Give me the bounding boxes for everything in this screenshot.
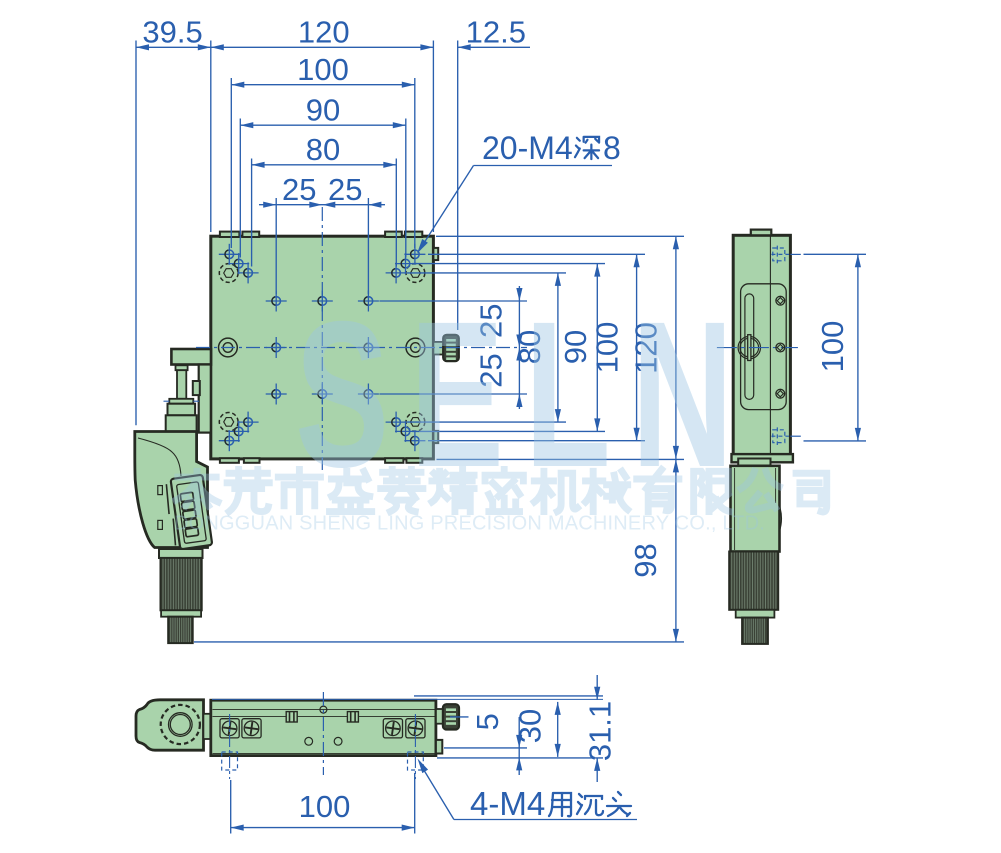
svg-text:31.1: 31.1 [583, 701, 618, 761]
svg-text:100: 100 [297, 52, 349, 87]
svg-text:25: 25 [328, 172, 362, 207]
svg-text:120: 120 [298, 15, 350, 50]
svg-text:DONGGUAN SHENG LING PRECISION: DONGGUAN SHENG LING PRECISION MACHINERY … [174, 513, 765, 535]
svg-text:12.5: 12.5 [466, 15, 526, 50]
svg-text:5: 5 [470, 713, 505, 730]
svg-text:30: 30 [513, 709, 548, 743]
svg-text:39.5: 39.5 [142, 15, 202, 50]
svg-text:100: 100 [815, 321, 850, 373]
svg-text:98: 98 [628, 543, 663, 577]
svg-text:20-M4: 20-M4 [482, 130, 573, 166]
svg-text:100: 100 [299, 789, 351, 824]
svg-text:25: 25 [282, 172, 316, 207]
svg-text:80: 80 [306, 132, 340, 167]
svg-text:8: 8 [603, 130, 621, 166]
svg-text:4-M4: 4-M4 [470, 785, 545, 822]
svg-text:90: 90 [306, 93, 340, 128]
